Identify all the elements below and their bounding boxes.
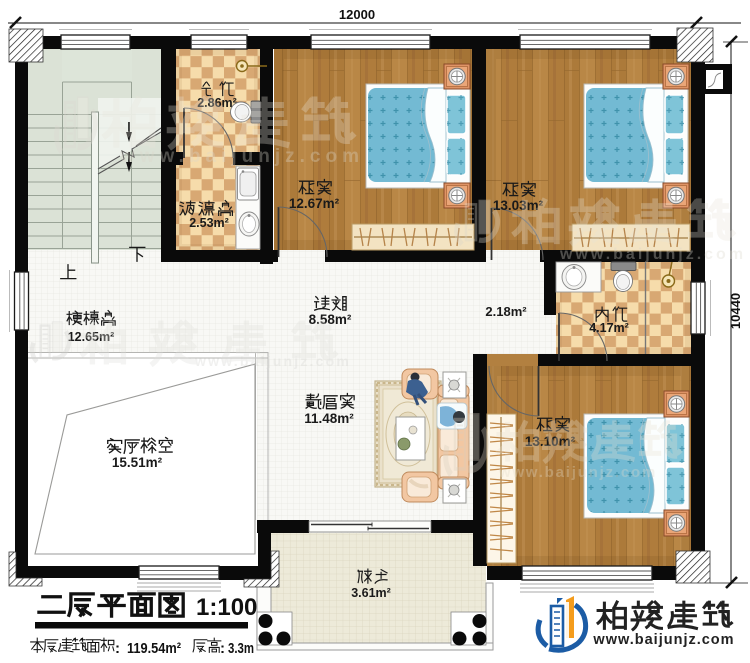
svg-text:3.61m²: 3.61m² — [351, 586, 391, 600]
svg-text:www.baijunjz.com: www.baijunjz.com — [559, 246, 746, 263]
svg-text::: : — [115, 640, 120, 657]
svg-text:www.baijunjz.com: www.baijunjz.com — [498, 464, 657, 481]
svg-text:3.3m: 3.3m — [228, 640, 254, 657]
svg-text:15.51m²: 15.51m² — [112, 455, 163, 470]
svg-text:12000: 12000 — [339, 7, 375, 22]
svg-text:2.18m²: 2.18m² — [485, 304, 527, 319]
svg-text:11.48m²: 11.48m² — [304, 411, 354, 426]
svg-text:www.baijunjz.com: www.baijunjz.com — [119, 146, 364, 167]
svg-text:10440: 10440 — [728, 293, 743, 329]
svg-text:www.baijunjz.com: www.baijunjz.com — [194, 353, 351, 369]
svg-text:12.67m²: 12.67m² — [289, 196, 340, 211]
svg-text:119.54m²: 119.54m² — [127, 640, 181, 657]
svg-text:2.53m²: 2.53m² — [189, 216, 229, 230]
svg-text:4.17m²: 4.17m² — [589, 321, 629, 335]
svg-text:www.baijunjz.com: www.baijunjz.com — [592, 632, 734, 648]
svg-text:8.58m²: 8.58m² — [309, 312, 352, 327]
svg-text::: : — [220, 640, 225, 657]
svg-text:1:100: 1:100 — [196, 594, 257, 621]
